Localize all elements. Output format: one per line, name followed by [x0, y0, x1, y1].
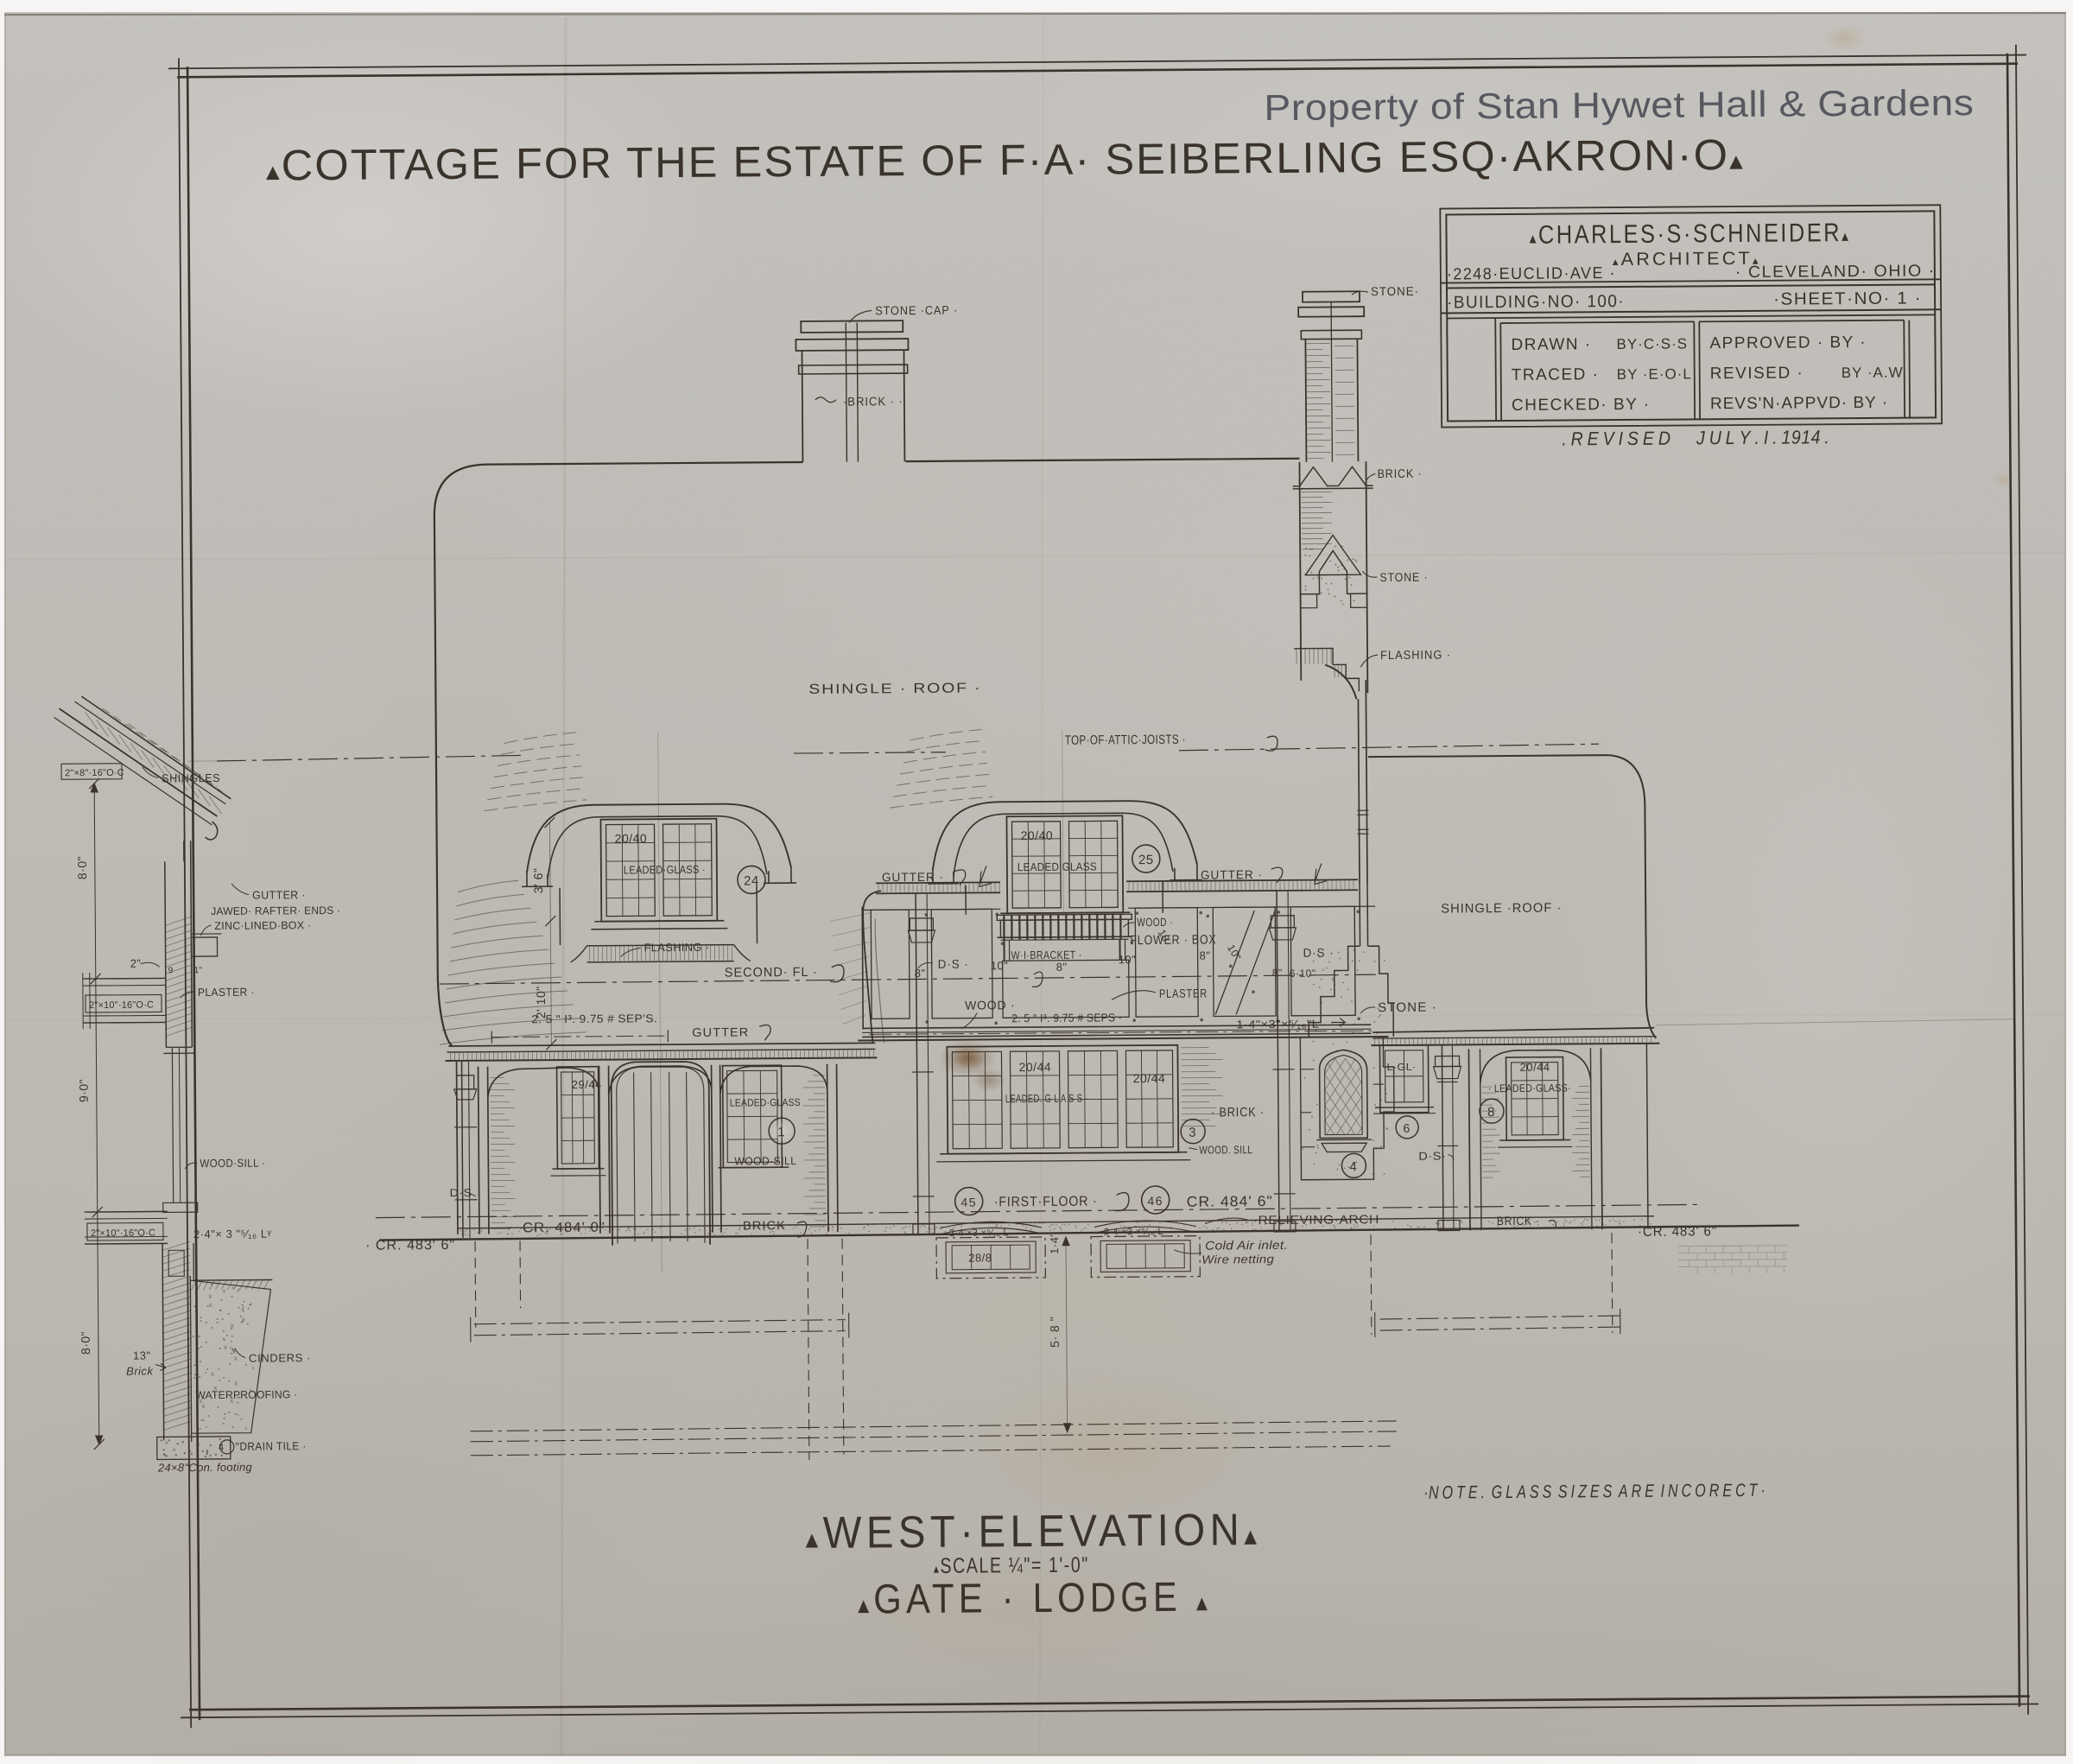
- svg-text:LEADED·GLASS ·: LEADED·GLASS ·: [624, 863, 706, 877]
- svg-text:FLASHING ·: FLASHING ·: [1380, 647, 1451, 662]
- svg-text:REVS'N·APPVD· BY ·: REVS'N·APPVD· BY ·: [1710, 394, 1888, 414]
- svg-text:·CR. 483' 6": ·CR. 483' 6": [1638, 1224, 1717, 1240]
- svg-text:BY ·A.W.: BY ·A.W.: [1842, 365, 1908, 382]
- svg-text:8: 8: [1487, 1105, 1496, 1120]
- svg-text:WOOD·SILL: WOOD·SILL: [734, 1154, 796, 1168]
- svg-text:9·0": 9·0": [77, 1079, 91, 1102]
- svg-text:2·4 ×3 ×⁵⁄₁₆ L: 2·4 ×3 ×⁵⁄₁₆ L: [949, 1228, 1009, 1239]
- svg-text:2. 5 " I³. 9.75 # SEP’S.: 2. 5 " I³. 9.75 # SEP’S.: [531, 1012, 657, 1025]
- svg-text:2·4"× 3 "⁵⁄₁₆ Lᵞ: 2·4"× 3 "⁵⁄₁₆ Lᵞ: [193, 1228, 272, 1241]
- svg-text:9: 9: [168, 966, 174, 975]
- svg-text:·2248·EUCLID·AVE ·: ·2248·EUCLID·AVE ·: [1447, 264, 1616, 283]
- svg-text:x: x: [224, 1343, 227, 1351]
- svg-text:W·I·BRACKET ·: W·I·BRACKET ·: [1011, 949, 1082, 962]
- svg-text:1·4": 1·4": [1048, 1232, 1061, 1254]
- svg-text:WOOD ·: WOOD ·: [965, 998, 1016, 1012]
- svg-text:L·GL·: L·GL·: [1387, 1063, 1417, 1073]
- svg-text:CR. 484' 6": CR. 484' 6": [1187, 1193, 1273, 1210]
- svg-text:8·0": 8·0": [75, 856, 89, 879]
- svg-text:WOOD·SILL ·: WOOD·SILL ·: [200, 1157, 265, 1171]
- svg-text:Wire netting: Wire netting: [1201, 1253, 1274, 1266]
- svg-text:24: 24: [744, 873, 759, 888]
- svg-text:x: x: [234, 1380, 238, 1387]
- svg-text:▴CHARLES·S·SCHNEIDER▴: ▴CHARLES·S·SCHNEIDER▴: [1529, 219, 1850, 250]
- svg-text:·RELIEVING·ARCH: ·RELIEVING·ARCH: [1253, 1212, 1379, 1227]
- svg-text:3' 6": 3' 6": [531, 868, 545, 894]
- svg-text:6·10": 6·10": [1290, 968, 1316, 980]
- svg-text:8": 8": [1056, 961, 1068, 974]
- svg-text:Cold Air inlet.: Cold Air inlet.: [1205, 1238, 1288, 1253]
- svg-text:10": 10": [991, 959, 1009, 972]
- svg-text:1: 1: [777, 1125, 786, 1139]
- svg-text:BRICK ·: BRICK ·: [1497, 1214, 1540, 1228]
- svg-text:x: x: [211, 1370, 214, 1378]
- svg-text:BRICK ·: BRICK ·: [1377, 466, 1422, 480]
- svg-text:▴GATE · LODGE ▴: ▴GATE · LODGE ▴: [858, 1575, 1212, 1623]
- svg-text:x: x: [231, 1322, 234, 1329]
- svg-text:2·4 ×3 ×⁵⁄₁₆ L: 2·4 ×3 ×⁵⁄₁₆ L: [1104, 1227, 1163, 1238]
- svg-text:▴WEST·ELEVATION▴: ▴WEST·ELEVATION▴: [805, 1505, 1261, 1558]
- svg-text:·BUILDING·NO· 100·: ·BUILDING·NO· 100·: [1447, 292, 1625, 313]
- svg-text:"DRAIN TILE ·: "DRAIN TILE ·: [236, 1439, 307, 1453]
- svg-text:28/8: 28/8: [968, 1251, 992, 1264]
- svg-text:2"×10"·16"O·C: 2"×10"·16"O·C: [89, 999, 154, 1011]
- svg-text:4: 4: [1349, 1159, 1358, 1174]
- svg-text:APPROVED · BY ·: APPROVED · BY ·: [1709, 333, 1867, 352]
- svg-text:CR. 484' 0": CR. 484' 0": [523, 1221, 605, 1236]
- svg-text:· BRICK ·: · BRICK ·: [1211, 1105, 1265, 1120]
- svg-text:TRACED ·: TRACED ·: [1512, 365, 1600, 384]
- svg-text:STONE ·CAP ·: STONE ·CAP ·: [875, 303, 958, 318]
- svg-text:2": 2": [130, 957, 142, 970]
- svg-text:20/44: 20/44: [1019, 1060, 1052, 1074]
- svg-text:1·4"×3"×⁵⁄₁₆"L: 1·4"×3"×⁵⁄₁₆"L: [1236, 1018, 1319, 1031]
- svg-text:WOOD ·: WOOD ·: [1137, 916, 1173, 929]
- svg-text:STONE ·: STONE ·: [1378, 1000, 1437, 1016]
- svg-text:GUTTER ·: GUTTER ·: [882, 870, 944, 885]
- svg-text:SHINGLE ·ROOF ·: SHINGLE ·ROOF ·: [1441, 901, 1562, 917]
- svg-text:46: 46: [1147, 1194, 1163, 1208]
- svg-text:ZINC·LINED·BOX ·: ZINC·LINED·BOX ·: [214, 919, 311, 932]
- svg-text:x: x: [234, 1355, 238, 1362]
- svg-text:29/44: 29/44: [572, 1078, 602, 1091]
- svg-text:GUTTER: GUTTER: [692, 1025, 749, 1038]
- svg-text:JAWED· RAFTER· ENDS ·: JAWED· RAFTER· ENDS ·: [211, 904, 340, 917]
- svg-text:SHINGLES: SHINGLES: [162, 771, 220, 784]
- svg-text:LEADED GLASS: LEADED GLASS: [1017, 860, 1097, 873]
- svg-text:BY ·E·O·L: BY ·E·O·L: [1617, 365, 1692, 383]
- svg-text:D·S·: D·S·: [1418, 1150, 1446, 1163]
- svg-text:GUTTER ·: GUTTER ·: [1201, 867, 1263, 882]
- svg-text:SECOND· FL ·: SECOND· FL ·: [725, 965, 818, 980]
- svg-text:8·0": 8·0": [79, 1331, 92, 1355]
- svg-text:STONE·: STONE·: [1371, 284, 1419, 298]
- svg-text:LEADED·GLASS: LEADED·GLASS: [730, 1096, 801, 1109]
- svg-text:x: x: [242, 1316, 245, 1323]
- svg-text:24×8"Con. footing: 24×8"Con. footing: [157, 1461, 253, 1475]
- svg-text:CHECKED· BY ·: CHECKED· BY ·: [1512, 396, 1651, 415]
- svg-text:▴SCALE ¼"= 1'-0": ▴SCALE ¼"= 1'-0": [934, 1553, 1089, 1578]
- svg-text:·N O T E . G L A S S S I Z E: ·N O T E . G L A S S S I Z E S A R E I N…: [1423, 1481, 1766, 1503]
- svg-text:TOP·OF·ATTIC·JOISTS ·: TOP·OF·ATTIC·JOISTS ·: [1065, 733, 1186, 748]
- svg-text:2"×10"·16"O·C: 2"×10"·16"O·C: [91, 1228, 155, 1239]
- svg-text:2. 5 " I³. 9.75 # SEPS ·: 2. 5 " I³. 9.75 # SEPS ·: [1011, 1011, 1122, 1025]
- svg-text:WOOD. SILL: WOOD. SILL: [1199, 1143, 1252, 1156]
- svg-text:5· 8 ": 5· 8 ": [1048, 1317, 1062, 1348]
- svg-text:2"×8"·16"O·C: 2"×8"·16"O·C: [65, 768, 124, 779]
- svg-text:6: 6: [1403, 1121, 1411, 1135]
- svg-text:WATERPROOFING ·: WATERPROOFING ·: [195, 1388, 297, 1401]
- svg-text:. R E V I S E D J U L Y .: . R E V I S E D J U L Y . I . 1914 .: [1562, 426, 1829, 449]
- svg-text:·FIRST·FLOOR ·: ·FIRST·FLOOR ·: [994, 1194, 1098, 1209]
- svg-text:BRICK: BRICK: [743, 1218, 786, 1232]
- svg-text:LEADED. G L A S S ·: LEADED. G L A S S ·: [1005, 1092, 1088, 1106]
- svg-text:STONE ·: STONE ·: [1379, 570, 1428, 584]
- svg-text:CINDERS ·: CINDERS ·: [249, 1351, 311, 1365]
- svg-text:20/40: 20/40: [615, 831, 648, 845]
- svg-text:BY·C·S·S: BY·C·S·S: [1616, 335, 1688, 352]
- svg-text:· CR. 483' 6": · CR. 483' 6": [365, 1238, 455, 1253]
- svg-text:·SHEET·NO· 1 ·: ·SHEET·NO· 1 ·: [1773, 289, 1922, 308]
- svg-text:FLOWER · BOX: FLOWER · BOX: [1130, 932, 1216, 948]
- svg-text:x: x: [208, 1292, 212, 1300]
- svg-text:3: 3: [1189, 1126, 1197, 1140]
- svg-text:D·S ·: D·S ·: [1303, 945, 1334, 959]
- svg-text:·BRICK · ·: ·BRICK · ·: [843, 394, 903, 409]
- svg-text:20/44: 20/44: [1133, 1071, 1166, 1085]
- svg-text:FLASHING ·: FLASHING ·: [643, 941, 709, 955]
- svg-text:REVISED ·: REVISED ·: [1710, 364, 1804, 383]
- svg-text:4: 4: [219, 1443, 225, 1453]
- svg-text:45: 45: [960, 1196, 977, 1209]
- svg-text:PLASTER ·: PLASTER ·: [198, 986, 255, 999]
- svg-text:PLASTER: PLASTER: [1159, 987, 1208, 1000]
- svg-text:13": 13": [133, 1349, 151, 1362]
- svg-text:Brick: Brick: [126, 1365, 154, 1378]
- svg-text:1": 1": [194, 966, 203, 975]
- svg-text:· CLEVELAND· OHIO ·: · CLEVELAND· OHIO ·: [1735, 262, 1936, 282]
- svg-text:Property of Stan Hywet Hall &: Property of Stan Hywet Hall & Gardens: [1264, 82, 1974, 128]
- svg-text:DRAWN ·: DRAWN ·: [1511, 335, 1591, 354]
- svg-text:D·S ·: D·S ·: [938, 957, 969, 971]
- svg-text:10": 10": [1119, 953, 1137, 966]
- svg-text:8": 8": [1200, 949, 1211, 962]
- svg-text:SHINGLE · ROOF ·: SHINGLE · ROOF ·: [808, 681, 981, 696]
- svg-text:25: 25: [1138, 853, 1154, 867]
- svg-text:· LEADED·GLASS·: · LEADED·GLASS·: [1488, 1082, 1571, 1095]
- svg-text:20/40: 20/40: [1021, 828, 1054, 842]
- svg-text:GUTTER ·: GUTTER ·: [252, 888, 306, 901]
- svg-text:x: x: [209, 1301, 212, 1309]
- svg-text:20/44: 20/44: [1520, 1061, 1550, 1074]
